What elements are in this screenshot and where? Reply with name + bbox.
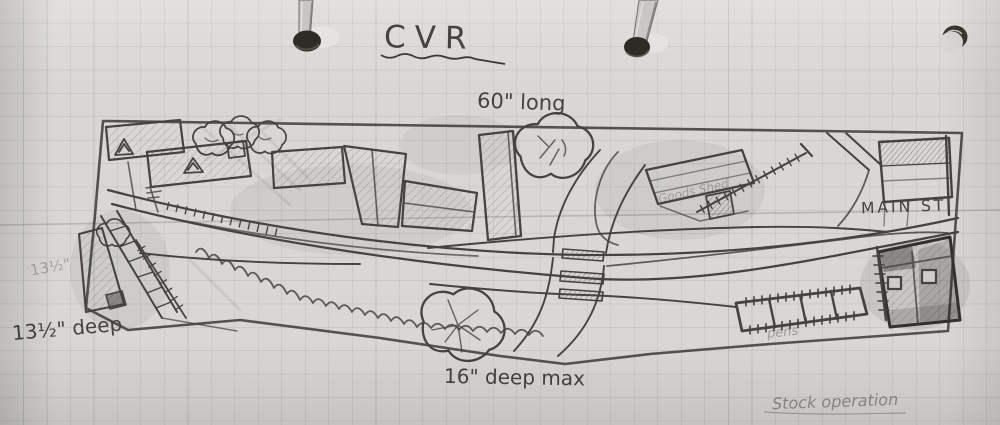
vignette-right	[945, 0, 1000, 425]
crossing-deck	[562, 249, 604, 261]
crossing-deck	[560, 271, 604, 284]
building-roof-shading	[879, 138, 950, 166]
layout-title: CVR	[384, 19, 476, 57]
photo-of-sketch: CVR 60" long MAIN ST 13½" 13½" deep 16" …	[0, 0, 1000, 425]
small-hut	[106, 291, 126, 309]
punched-hole	[293, 31, 321, 52]
light-glare-top	[0, 0, 1000, 85]
vignette-bottom	[0, 345, 1000, 425]
street-label: MAIN ST	[861, 196, 947, 217]
doorway	[888, 277, 901, 289]
doorway	[922, 270, 936, 283]
length-label: 60" long	[477, 89, 566, 116]
track-plan-sketch: CVR 60" long MAIN ST 13½" 13½" deep 16" …	[0, 0, 1000, 425]
post-highlight	[301, 2, 302, 36]
building	[272, 147, 345, 188]
